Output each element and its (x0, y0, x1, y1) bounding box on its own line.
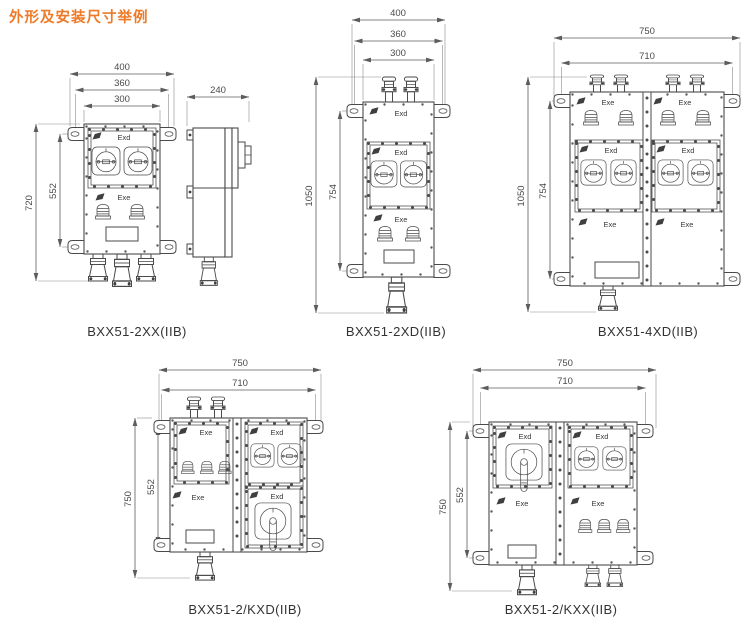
drawing-bxx51-4xd: 750 710 1050 754 (516, 26, 740, 339)
cable-gland-top (211, 397, 225, 419)
svg-text:1050: 1050 (304, 185, 315, 206)
model-label: BXX51-2/KXD(IIB) (188, 602, 301, 617)
cable-gland-top (690, 75, 704, 92)
svg-text:552: 552 (146, 479, 157, 495)
exd-label: Exd (118, 133, 131, 142)
svg-text:400: 400 (114, 62, 130, 73)
mounting-ear (160, 128, 176, 141)
mounting-ear (307, 421, 323, 434)
cover-layer (225, 128, 232, 257)
dim-left-754: 754 (328, 111, 350, 271)
dim-left-754: 754 (538, 101, 560, 279)
cable-gland (585, 565, 601, 587)
cable-gland-top (187, 397, 201, 419)
model-label: BXX51-2/KXX(IIB) (505, 602, 618, 617)
svg-text:750: 750 (639, 26, 655, 37)
exd-label: Exd (395, 109, 408, 118)
svg-text:710: 710 (639, 51, 655, 62)
exd-label: Exd (519, 432, 532, 441)
exd-label: Exd (605, 146, 618, 155)
mounting-ear (347, 105, 363, 118)
drawing-bxx51-2xx: 400 360 300 720 552 (24, 62, 187, 339)
svg-text:360: 360 (390, 29, 406, 40)
mounting-ear (154, 421, 170, 434)
dim-top-750: 750 (159, 358, 321, 424)
dim-left-552: 552 (146, 427, 168, 545)
svg-text:710: 710 (557, 376, 573, 387)
dim-left-552: 552 (48, 134, 72, 247)
dim-top-360: 360 (355, 29, 443, 108)
mounting-ear (554, 273, 570, 286)
model-label: BXX51-2XD(IIB) (346, 324, 446, 339)
svg-text:240: 240 (210, 85, 226, 96)
exd-label: Exd (271, 492, 284, 501)
cable-gland (89, 254, 108, 281)
exe-label: Exe (118, 193, 131, 202)
mounting-ear (154, 539, 170, 552)
catalog-page: 外形及安装尺寸举例 (0, 0, 750, 627)
drawing-bxx51-2kxd: 750 710 750 552 (123, 358, 323, 617)
mounting-ear (637, 552, 653, 565)
svg-text:710: 710 (232, 378, 248, 389)
mounting-ear (724, 273, 740, 286)
exe-label: Exe (192, 493, 205, 502)
mounting-ear (637, 425, 653, 438)
cable-gland-top (614, 75, 628, 92)
drawing-bxx51-2kxx: 750 710 750 552 (438, 358, 656, 617)
cable-gland-top (666, 75, 680, 92)
exe-label: Exe (395, 215, 408, 224)
divider-wall (643, 92, 651, 286)
cable-gland (200, 257, 217, 285)
mounting-ear (68, 241, 84, 254)
mounting-ear (473, 552, 489, 565)
mounting-ear (160, 241, 176, 254)
exd-label: Exd (682, 146, 695, 155)
mounting-ear (434, 105, 450, 118)
svg-text:750: 750 (557, 358, 573, 369)
cable-gland-top (382, 77, 396, 103)
svg-text:360: 360 (114, 78, 130, 89)
svg-text:754: 754 (538, 183, 549, 199)
svg-text:552: 552 (48, 183, 59, 199)
model-label: BXX51-2XX(IIB) (87, 324, 187, 339)
mounting-ear (554, 95, 570, 108)
dim-top-710: 710 (562, 51, 733, 98)
svg-text:750: 750 (438, 499, 449, 515)
svg-text:750: 750 (232, 358, 248, 369)
mounting-ear (307, 539, 323, 552)
side-operator (238, 142, 251, 168)
cable-gland (518, 565, 537, 595)
cable-gland (599, 286, 618, 310)
mounting-ear (347, 265, 363, 278)
cable-gland (387, 277, 407, 313)
cable-gland (113, 254, 132, 286)
exd-label: Exd (271, 428, 284, 437)
svg-text:750: 750 (123, 491, 134, 507)
exe-label: Exe (681, 220, 694, 229)
dim-left-720: 720 (24, 124, 92, 281)
svg-text:552: 552 (455, 487, 466, 503)
enclosure-depth (193, 128, 225, 257)
cable-gland (607, 565, 623, 587)
cable-gland-top (590, 75, 604, 92)
exe-label: Exe (592, 499, 605, 508)
svg-text:1050: 1050 (516, 185, 527, 206)
enclosure-body (363, 102, 434, 277)
exe-label: Exe (679, 98, 692, 107)
exe-label: Exe (516, 499, 529, 508)
exe-label: Exe (602, 98, 615, 107)
svg-text:720: 720 (24, 195, 35, 211)
dim-top-300: 300 (363, 48, 434, 100)
cable-gland (137, 254, 156, 281)
mounting-ear (724, 95, 740, 108)
svg-text:300: 300 (390, 48, 406, 59)
exd-label: Exd (596, 432, 609, 441)
dim-top-240: 240 (187, 85, 249, 126)
svg-text:754: 754 (328, 184, 339, 200)
cable-gland (196, 552, 215, 580)
exd-cover-depth (232, 128, 238, 188)
mounting-ear (434, 265, 450, 278)
enclosure-body (84, 124, 160, 254)
dim-top-300: 300 (84, 94, 160, 122)
drawings-sheet: 400 360 300 720 552 (0, 0, 750, 627)
dim-top-750: 750 (473, 358, 656, 428)
exe-label: Exe (200, 428, 213, 437)
exd-label: Exd (395, 148, 408, 157)
drawing-bxx51-2xd: 400 360 300 1050 754 (304, 8, 450, 339)
exe-label: Exe (604, 220, 617, 229)
cable-gland-top (404, 77, 418, 103)
drawing-side-view: 240 (187, 85, 251, 285)
dim-left-552: 552 (455, 431, 477, 558)
mounting-ear (473, 425, 489, 438)
model-label: BXX51-4XD(IIB) (598, 324, 698, 339)
mounting-tabs (187, 130, 193, 254)
mounting-ear (68, 128, 84, 141)
svg-text:300: 300 (114, 94, 130, 105)
svg-text:400: 400 (390, 8, 406, 19)
